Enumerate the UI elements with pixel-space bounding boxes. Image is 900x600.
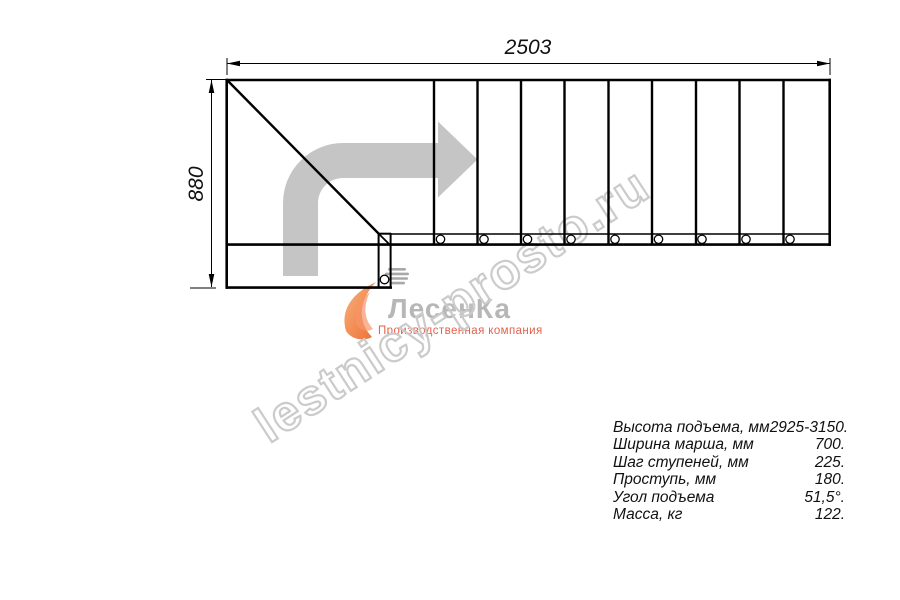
spec-label: Высота подъема, мм <box>613 419 770 436</box>
spec-row-step-pitch: Шаг ступеней, мм 225. <box>613 454 845 471</box>
spec-label: Угол подъема <box>613 489 714 506</box>
spec-row-angle: Угол подъема 51,5°. <box>613 489 845 506</box>
dimension-width <box>227 58 830 75</box>
direction-arrow-icon <box>283 122 478 277</box>
spec-value: 225. <box>815 454 845 471</box>
spec-row-mass: Масса, кг 122. <box>613 506 845 523</box>
spec-value: 700. <box>815 436 845 453</box>
spec-row-height: Высота подъема, мм 2925-3150. <box>613 419 845 436</box>
spec-label: Ширина марша, мм <box>613 436 754 453</box>
spec-label: Шаг ступеней, мм <box>613 454 749 471</box>
dimension-width-value: 2503 <box>505 36 552 60</box>
spec-row-march-width: Ширина марша, мм 700. <box>613 436 845 453</box>
tread-lines <box>434 80 784 244</box>
spec-label: Проступь, мм <box>613 471 716 488</box>
spec-value: 51,5°. <box>804 489 845 506</box>
spec-row-tread: Проступь, мм 180. <box>613 471 845 488</box>
spec-table: Высота подъема, мм 2925-3150. Ширина мар… <box>613 419 845 523</box>
stair-plan-drawing: ЛесенКа Производственная компания lestni… <box>0 0 900 600</box>
spec-label: Масса, кг <box>613 506 682 523</box>
stringer-band <box>391 234 829 244</box>
spec-value: 2925-3150. <box>770 419 848 436</box>
dimension-height-value: 880 <box>185 166 209 201</box>
spec-value: 122. <box>815 506 845 523</box>
spec-value: 180. <box>815 471 845 488</box>
